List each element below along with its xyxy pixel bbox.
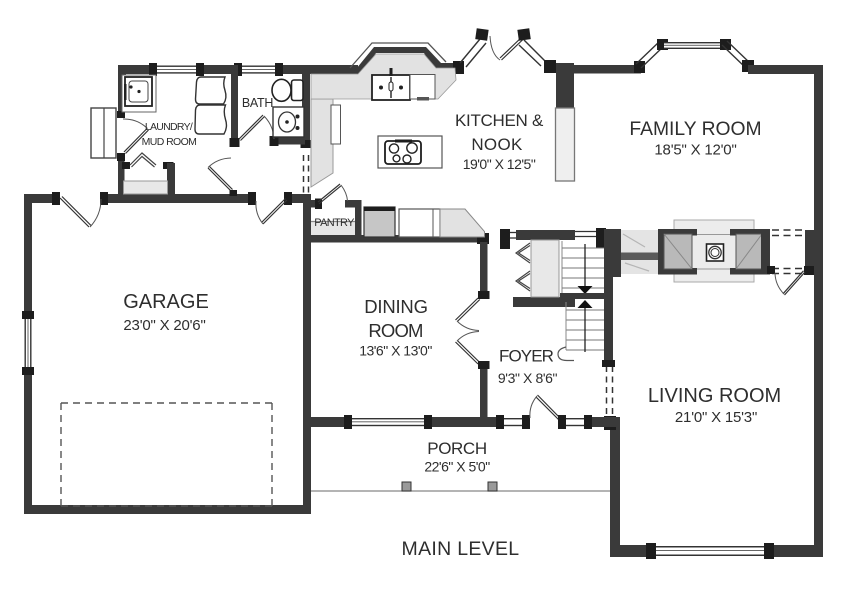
svg-text:13'6" X 13'0": 13'6" X 13'0" (359, 343, 432, 359)
svg-text:GARAGE: GARAGE (123, 291, 209, 313)
svg-text:23'0" X 20'6": 23'0" X 20'6" (123, 317, 205, 334)
svg-text:19'0" X 12'5": 19'0" X 12'5" (463, 156, 536, 172)
svg-text:FOYER: FOYER (499, 347, 554, 366)
svg-text:LAUNDRY/: LAUNDRY/ (145, 121, 193, 133)
svg-text:21'0" X 15'3": 21'0" X 15'3" (675, 409, 757, 426)
svg-text:MUD ROOM: MUD ROOM (142, 136, 197, 148)
svg-text:DINING: DINING (364, 296, 428, 317)
svg-text:22'6" X 5'0": 22'6" X 5'0" (424, 459, 490, 475)
svg-text:9'3" X 8'6": 9'3" X 8'6" (498, 370, 558, 386)
svg-text:MAIN LEVEL: MAIN LEVEL (402, 538, 520, 560)
svg-text:KITCHEN &: KITCHEN & (455, 111, 544, 130)
svg-text:18'5" X 12'0": 18'5" X 12'0" (654, 142, 736, 159)
svg-text:ROOM: ROOM (368, 320, 422, 341)
svg-text:PANTRY: PANTRY (314, 217, 355, 229)
svg-text:BATH: BATH (242, 96, 273, 110)
svg-text:PORCH: PORCH (427, 439, 486, 458)
svg-text:NOOK: NOOK (471, 135, 523, 154)
svg-text:FAMILY ROOM: FAMILY ROOM (629, 119, 761, 140)
svg-text:LIVING ROOM: LIVING ROOM (648, 385, 781, 407)
